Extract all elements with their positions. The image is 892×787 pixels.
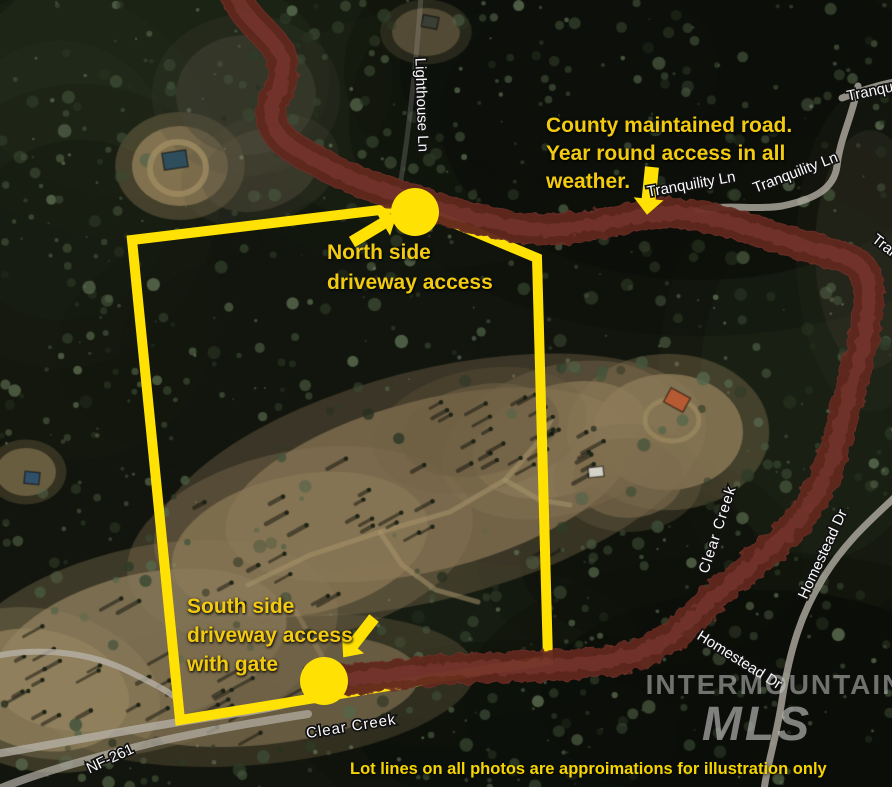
annotated-satellite-map: Lighthouse Ln Tranquility Ln Tranquility…	[0, 0, 892, 787]
north-driveway-marker	[391, 188, 439, 236]
callout-line: weather.	[546, 168, 792, 196]
road-label: NF-261	[84, 741, 137, 778]
callout-line: Year round access in all	[546, 140, 792, 168]
county-road-callout: County maintained road. Year round acces…	[546, 112, 792, 196]
north-access-callout: North side driveway access	[327, 238, 493, 298]
highlighted-county-road	[235, 0, 869, 681]
road-label: Lighthouse Ln	[411, 57, 431, 152]
callout-line: driveway access	[327, 268, 493, 298]
callout-line: driveway access	[187, 621, 353, 650]
mls-watermark: INTERMOUNTAIN MLS	[646, 669, 892, 751]
callout-line: County maintained road.	[546, 112, 792, 140]
watermark-logo-text: MLS	[702, 698, 812, 751]
south-access-callout: South side driveway access with gate	[187, 592, 353, 679]
watermark-text: INTERMOUNTAIN	[646, 669, 892, 700]
callout-line: North side	[327, 238, 493, 268]
lot-lines-disclaimer: Lot lines on all photos are approimation…	[350, 760, 827, 779]
road-label: Tranqu	[845, 79, 892, 105]
callout-line: South side	[187, 592, 353, 621]
road-label: Clear Creek	[305, 711, 398, 742]
spur-road	[0, 652, 180, 701]
callout-line: with gate	[187, 650, 353, 679]
